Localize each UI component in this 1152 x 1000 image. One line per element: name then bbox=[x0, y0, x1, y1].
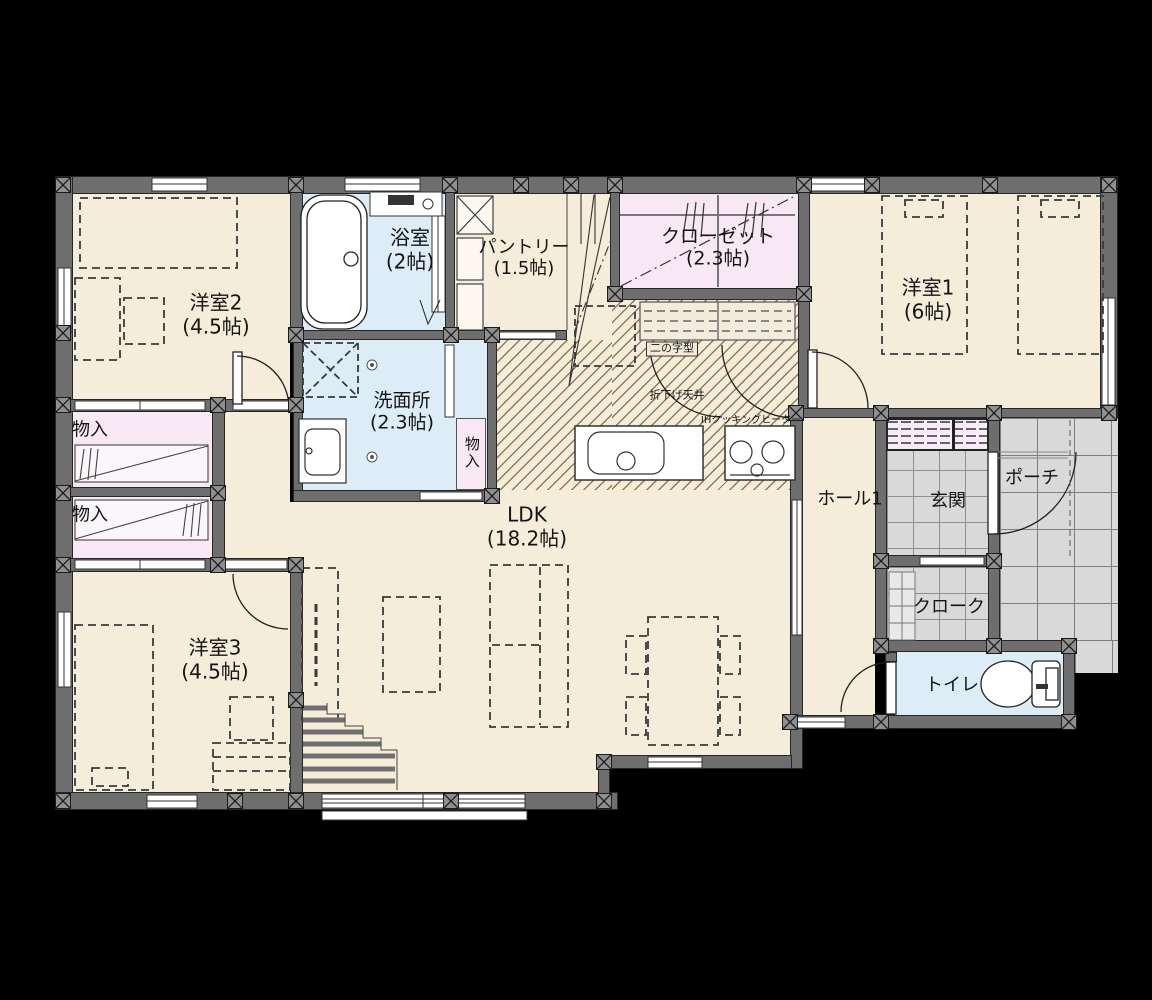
corridor bbox=[225, 412, 290, 558]
floor-plan: 洋室2(4.5帖) 浴室(2帖) パントリー(1.5帖) クローゼット(2.3帖… bbox=[0, 0, 1152, 1000]
label-dropped-ceiling: 折下げ天井 bbox=[650, 390, 705, 403]
room-stairwell bbox=[567, 194, 612, 340]
wall-monoire-divider bbox=[55, 487, 225, 497]
label-bath: 浴室(2帖) bbox=[386, 226, 434, 273]
wall-bottom-right bbox=[785, 715, 1075, 729]
label-monoire-senmenjo: 物入 bbox=[462, 436, 480, 470]
room-yoshitsu1 bbox=[810, 194, 1100, 408]
label-monoire-lower: 物入 bbox=[72, 504, 108, 525]
label-monoire-upper: 物入 bbox=[72, 419, 108, 440]
label-toilet: トイレ bbox=[925, 674, 979, 695]
wall-hall-genkan bbox=[875, 418, 887, 652]
wall-bath-pantry bbox=[445, 176, 455, 340]
genkan-shoe-cabinet bbox=[886, 418, 989, 451]
wall-cloak-right-stub bbox=[988, 640, 1000, 652]
wall-monoire-right bbox=[212, 399, 225, 572]
wall-closet-bottom bbox=[612, 288, 810, 300]
kitchen-floor-left bbox=[497, 340, 612, 490]
label-genkan: 玄関 bbox=[930, 490, 966, 511]
wall-dining-bottom bbox=[598, 755, 792, 769]
room-hall1 bbox=[803, 418, 875, 715]
label-ldk: LDK(18.2帖) bbox=[487, 503, 567, 550]
room-porch bbox=[1000, 418, 1118, 640]
porch-step bbox=[1075, 640, 1118, 673]
wall-y2-bottom bbox=[55, 399, 303, 412]
room-ldk-dining bbox=[598, 502, 790, 755]
wall-bottom-left bbox=[55, 792, 618, 810]
wall-right-upper bbox=[1100, 176, 1118, 418]
kitchen-floor-right bbox=[612, 300, 798, 490]
label-senmenjo: 洗面所(2.3帖) bbox=[370, 390, 434, 435]
wall-y2-bath bbox=[290, 176, 303, 340]
wall-entry-top bbox=[798, 408, 1118, 418]
label-yoshitsu2: 洋室2(4.5帖) bbox=[182, 291, 249, 338]
wall-bath-wash bbox=[293, 330, 567, 340]
wall-stairs-closet bbox=[610, 176, 620, 300]
wall-toilet-left-stub bbox=[885, 652, 897, 662]
wall-monoire-bottom bbox=[55, 558, 303, 572]
label-porch: ポーチ bbox=[1005, 467, 1059, 488]
wall-y3-right bbox=[290, 558, 303, 810]
wall-cloak-top bbox=[875, 555, 998, 567]
label-yoshitsu3: 洋室3(4.5帖) bbox=[181, 636, 248, 683]
label-yoshitsu1: 洋室1(6帖) bbox=[902, 276, 955, 323]
label-hall1: ホール1 bbox=[817, 488, 882, 509]
ldk-kitchen-gap bbox=[497, 490, 790, 502]
label-pantry: パントリー(1.5帖) bbox=[479, 237, 570, 279]
room-toilet bbox=[895, 652, 1063, 715]
wall-wash-bottom bbox=[293, 490, 497, 502]
wall-genkan-porch bbox=[988, 418, 1000, 640]
wall-wash-right bbox=[487, 340, 497, 502]
label-ih-cooktop: IHクッキングヒーター bbox=[701, 415, 801, 427]
label-cloak: クローク bbox=[913, 596, 985, 617]
wall-wash-left bbox=[293, 340, 303, 502]
wall-step bbox=[598, 755, 610, 810]
label-closet: クローゼット(2.3帖) bbox=[661, 226, 775, 271]
label-kitchen-layout: 二の字型 bbox=[646, 342, 698, 357]
shoe-cabinet-divider bbox=[952, 419, 955, 450]
wall-top bbox=[55, 176, 1118, 194]
wall-toilet-right bbox=[1063, 652, 1075, 715]
wall-toilet-top bbox=[875, 640, 1075, 652]
